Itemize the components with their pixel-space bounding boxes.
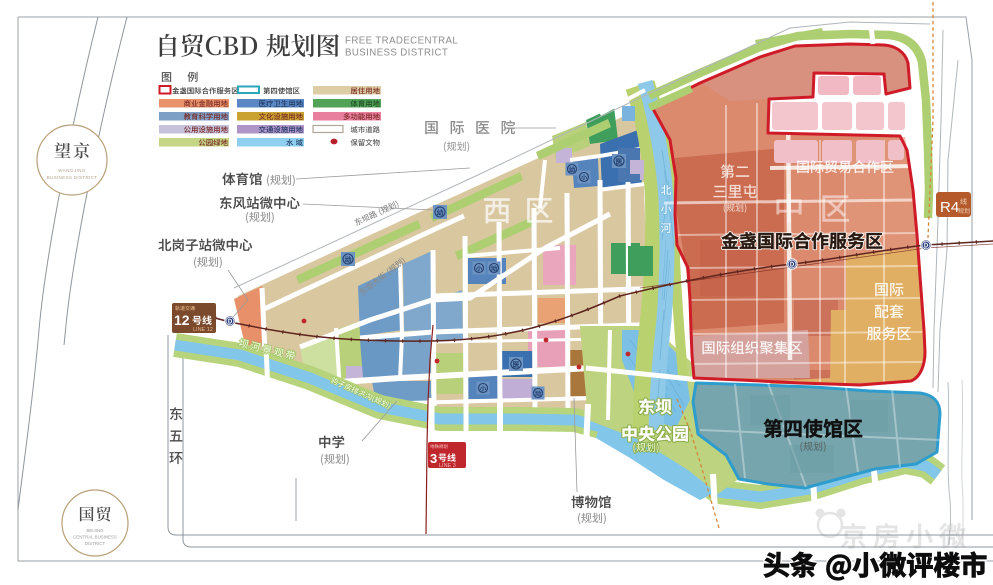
svg-text:LINE 12: LINE 12 (193, 327, 213, 333)
svg-text:FREE TRADECENTRAL: FREE TRADECENTRAL (345, 36, 458, 47)
svg-text:BUSINESS DISTRICT: BUSINESS DISTRICT (345, 48, 448, 59)
svg-text:12: 12 (174, 312, 190, 328)
svg-text:LINE 3: LINE 3 (439, 463, 456, 469)
svg-text:WANGJING: WANGJING (58, 168, 86, 173)
svg-text:R4: R4 (940, 199, 959, 216)
svg-text:CENTRAL BUSINESS: CENTRAL BUSINESS (73, 535, 117, 540)
svg-text:DISTRICT: DISTRICT (85, 541, 106, 546)
svg-text:BEIJING: BEIJING (86, 528, 104, 533)
svg-text:3: 3 (430, 451, 437, 466)
svg-text:BUSINESS DISTRICT: BUSINESS DISTRICT (47, 175, 98, 180)
